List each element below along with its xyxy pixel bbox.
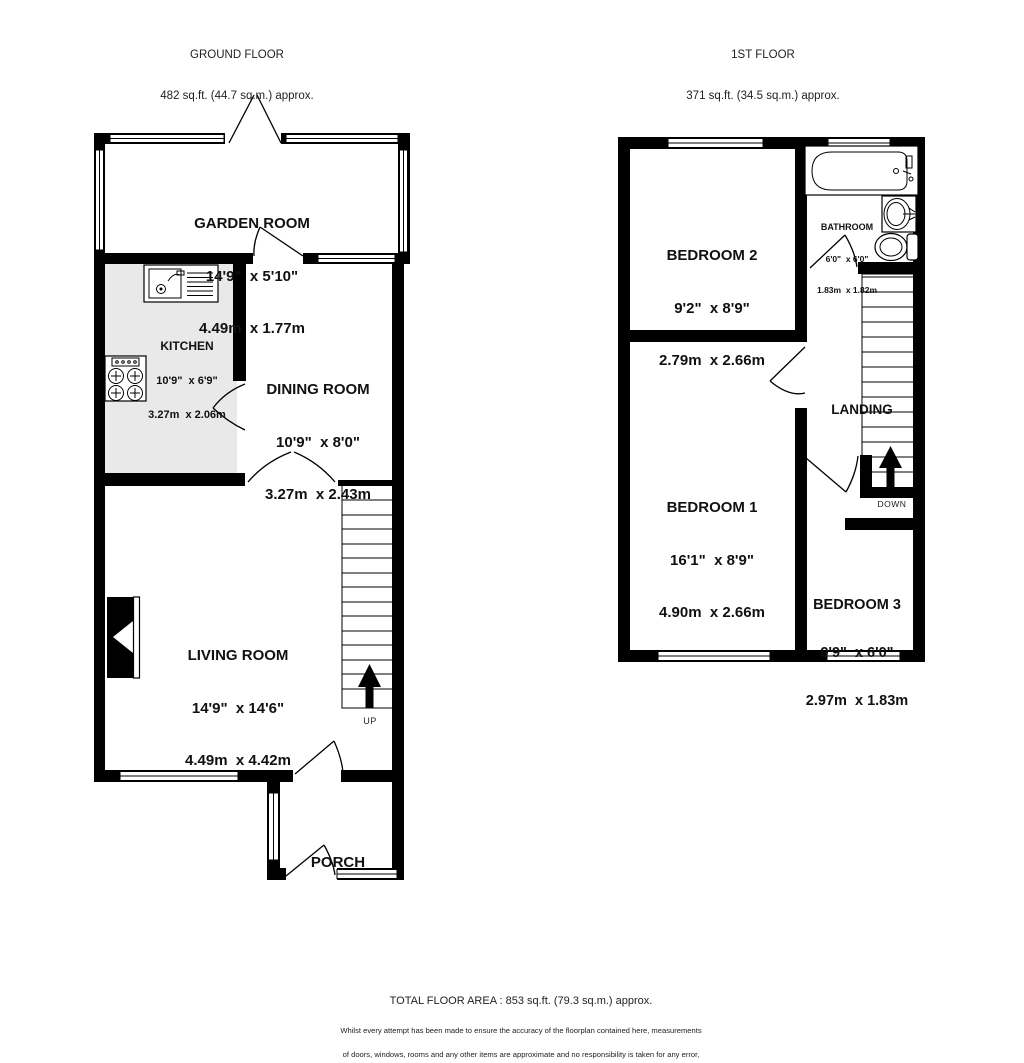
room-label-bathroom: BATHROOM 6'0" x 6'0" 1.83m x 1.82m xyxy=(817,201,877,317)
bedroom-2-name: BEDROOM 2 xyxy=(659,247,765,265)
down-arrow-icon xyxy=(879,446,902,487)
first-floor-title: 1ST FLOOR xyxy=(686,49,839,63)
room-label-dining-room: DINING ROOM 10'9" x 8'0" 3.27m x 2.43m xyxy=(265,346,371,539)
total-floor-area: TOTAL FLOOR AREA : 853 sq.ft. (79.3 sq.m… xyxy=(390,995,653,1007)
bathroom-imperial: 6'0" x 6'0" xyxy=(817,254,877,265)
toilet-icon xyxy=(875,234,918,261)
disclaimer: Whilst every attempt has been made to en… xyxy=(338,1012,703,1063)
kitchen-imperial: 10'9" x 6'9" xyxy=(148,376,226,388)
bedroom-1-metric: 4.90m x 2.66m xyxy=(659,604,765,622)
first-floor-area: 371 sq.ft. (34.5 sq.m.) approx. xyxy=(686,90,839,104)
washbasin-icon xyxy=(882,196,916,232)
bedroom-1-door xyxy=(806,456,858,492)
garden-room-name: GARDEN ROOM xyxy=(194,215,310,233)
stairs-up-label: UP xyxy=(363,716,377,726)
dining-room-metric: 3.27m x 2.43m xyxy=(265,486,371,504)
living-room-name: LIVING ROOM xyxy=(185,647,291,665)
disclaimer-line-2: of doors, windows, rooms and any other i… xyxy=(338,1051,703,1059)
room-label-porch: PORCH xyxy=(311,820,365,905)
dining-room-name: DINING ROOM xyxy=(265,381,371,399)
bedroom-1-imperial: 16'1" x 8'9" xyxy=(659,552,765,570)
room-label-bedroom-3: BEDROOM 3 9'9" x 6'0" 2.97m x 1.83m xyxy=(806,565,908,741)
first-floor-header: 1ST FLOOR 371 sq.ft. (34.5 sq.m.) approx… xyxy=(686,22,839,130)
stairs-down-label: DOWN xyxy=(878,499,907,509)
living-room-imperial: 14'9" x 14'6" xyxy=(185,700,291,718)
bathroom-metric: 1.83m x 1.82m xyxy=(817,285,877,296)
up-arrow-icon xyxy=(358,664,381,708)
room-label-bedroom-1: BEDROOM 1 16'1" x 8'9" 4.90m x 2.66m xyxy=(659,464,765,657)
garden-room-imperial: 14'9" x 5'10" xyxy=(194,268,310,286)
bedroom-1-name: BEDROOM 1 xyxy=(659,499,765,517)
kitchen-name: KITCHEN xyxy=(148,341,226,353)
ground-floor-title: GROUND FLOOR xyxy=(160,49,313,63)
disclaimer-line-1: Whilst every attempt has been made to en… xyxy=(338,1027,703,1035)
porch-name: PORCH xyxy=(311,854,365,871)
dining-room-imperial: 10'9" x 8'0" xyxy=(265,434,371,452)
bathtub-icon xyxy=(805,146,918,195)
fireplace-icon xyxy=(107,597,140,678)
bedroom-3-imperial: 9'9" x 6'0" xyxy=(806,645,908,661)
living-room-metric: 4.49m x 4.42m xyxy=(185,752,291,770)
bedroom-3-metric: 2.97m x 1.83m xyxy=(806,693,908,709)
cooker-hob-icon xyxy=(105,356,146,401)
room-label-bedroom-2: BEDROOM 2 9'2" x 8'9" 2.79m x 2.66m xyxy=(659,212,765,405)
floorplan-page: GROUND FLOOR 482 sq.ft. (44.7 sq.m.) app… xyxy=(0,0,1024,1063)
kitchen-metric: 3.27m x 2.06m xyxy=(148,410,226,422)
room-label-landing: LANDING xyxy=(831,372,893,447)
landing-name: LANDING xyxy=(831,402,893,417)
room-label-kitchen: KITCHEN 10'9" x 6'9" 3.27m x 2.06m xyxy=(148,318,226,445)
bathroom-name: BATHROOM xyxy=(817,222,877,233)
bedroom-2-imperial: 9'2" x 8'9" xyxy=(659,300,765,318)
bedroom-3-name: BEDROOM 3 xyxy=(806,597,908,613)
bedroom-2-metric: 2.79m x 2.66m xyxy=(659,352,765,370)
room-label-living-room: LIVING ROOM 14'9" x 14'6" 4.49m x 4.42m xyxy=(185,612,291,805)
bedroom-2-door xyxy=(770,347,805,394)
